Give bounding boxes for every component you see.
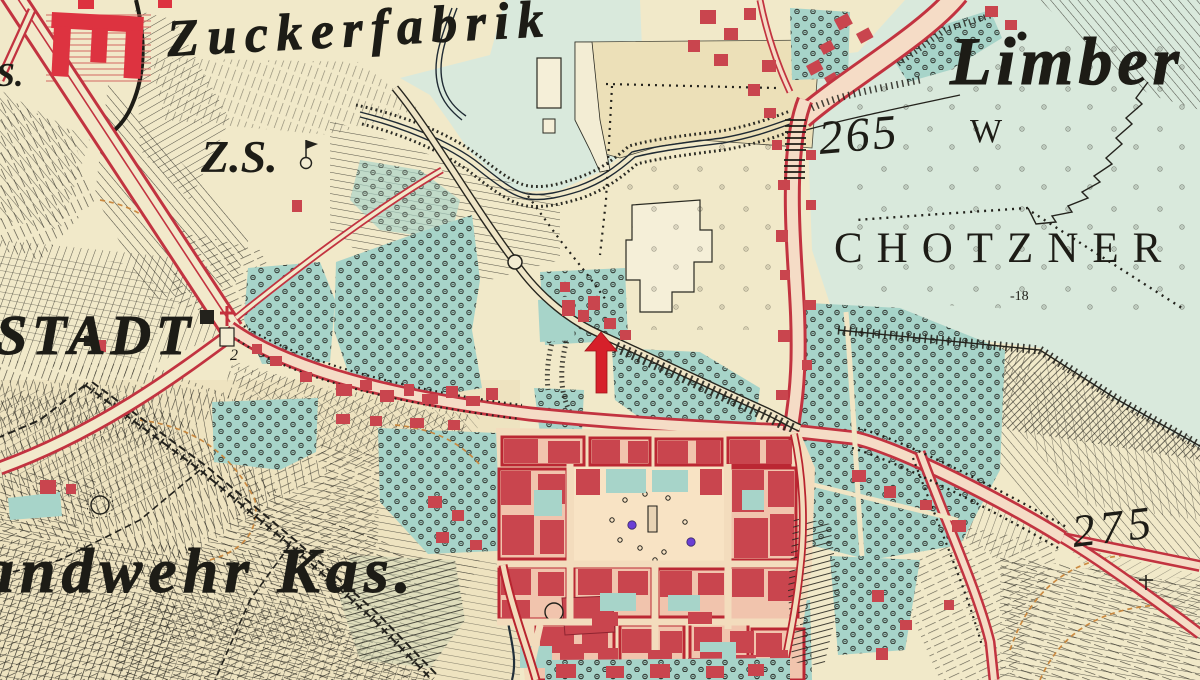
svg-text:CHOTZNER: CHOTZNER xyxy=(834,225,1175,272)
svg-text:-18: -18 xyxy=(1010,289,1029,304)
svg-text:Limber: Limber xyxy=(949,23,1184,99)
svg-text:andwehr Kas.: andwehr Kas. xyxy=(0,535,417,606)
svg-text:265: 265 xyxy=(816,105,901,165)
svg-text:275: 275 xyxy=(1069,496,1159,557)
svg-text:Z.S.: Z.S. xyxy=(200,131,278,182)
svg-text:S.: S. xyxy=(0,57,23,94)
svg-text:2: 2 xyxy=(230,347,238,364)
svg-text:STADT: STADT xyxy=(0,305,195,367)
svg-text:W: W xyxy=(970,113,1003,150)
